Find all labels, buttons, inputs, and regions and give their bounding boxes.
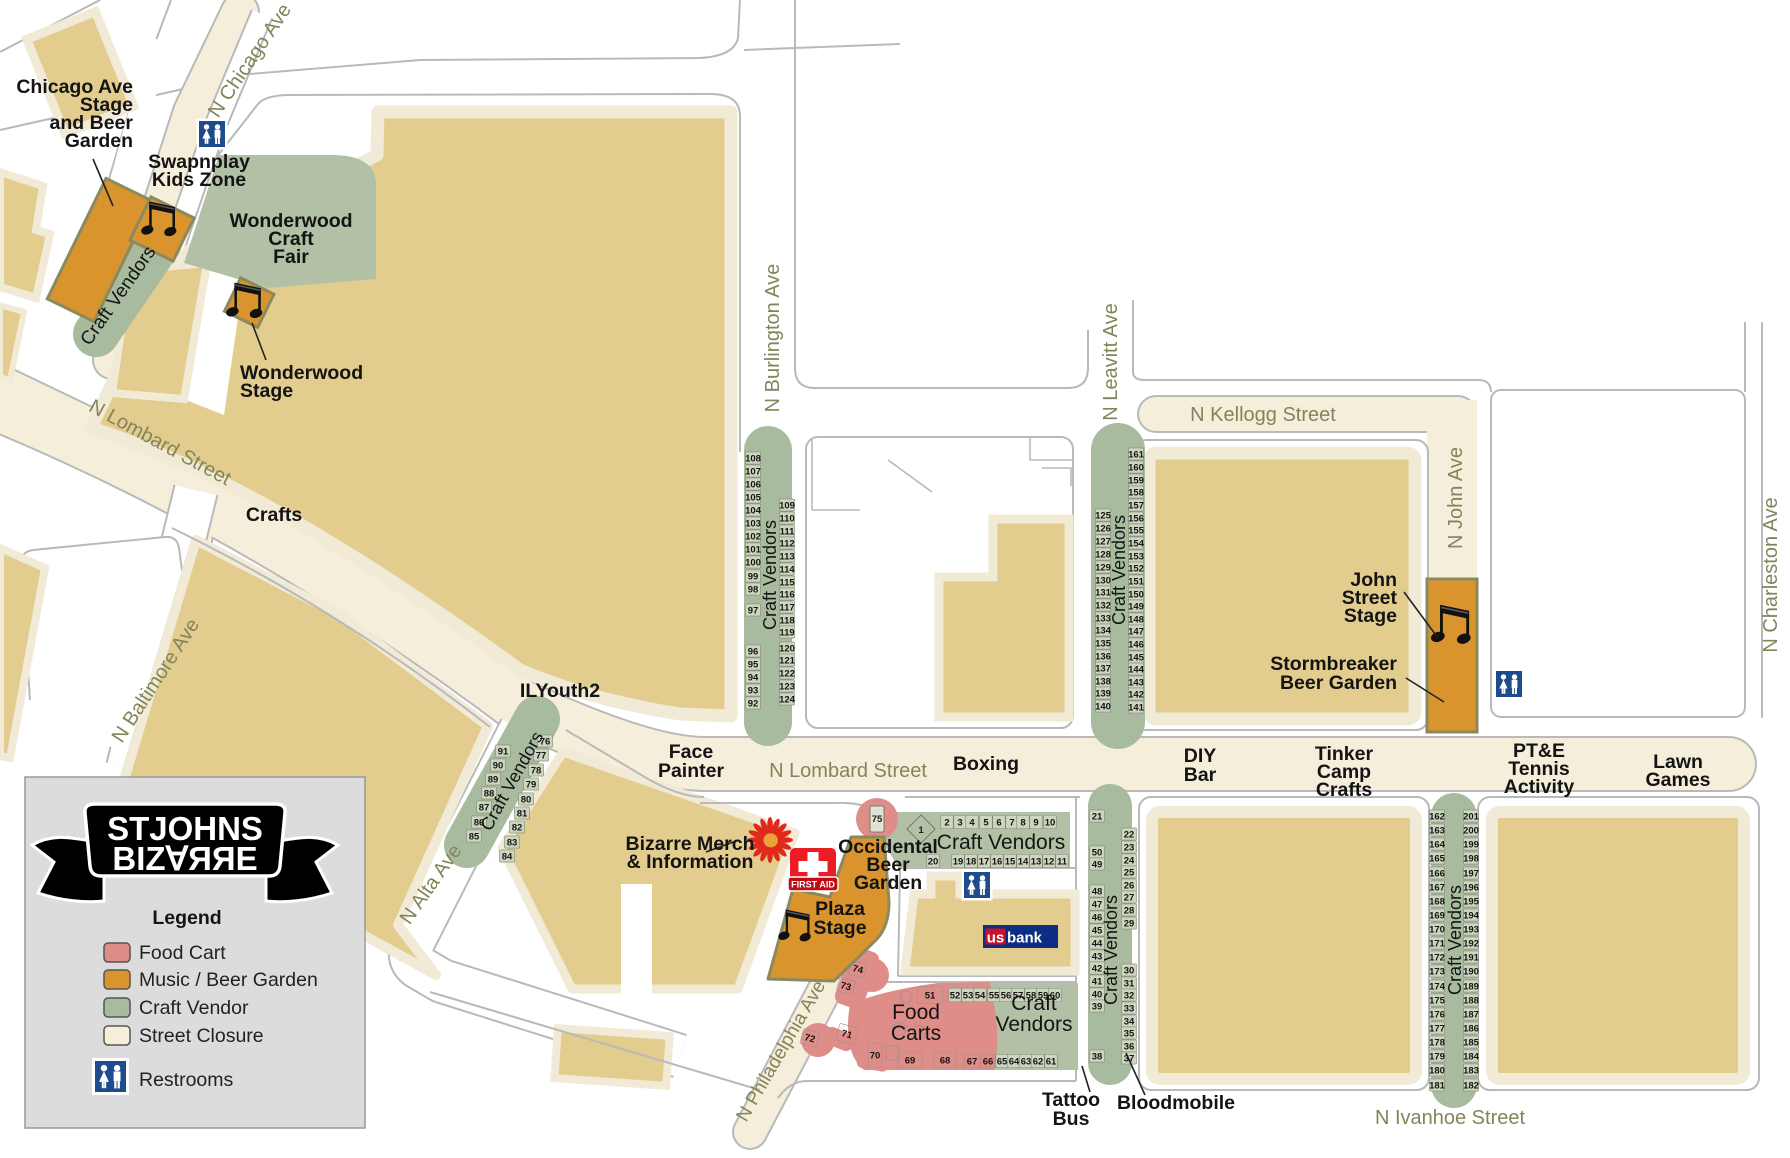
svg-text:183: 183 xyxy=(1463,1065,1479,1076)
svg-text:179: 179 xyxy=(1429,1051,1445,1062)
svg-text:192: 192 xyxy=(1463,938,1479,949)
svg-text:117: 117 xyxy=(779,602,794,613)
svg-text:120: 120 xyxy=(779,643,795,654)
svg-text:Music / Beer Garden: Music / Beer Garden xyxy=(139,969,318,991)
svg-text:191: 191 xyxy=(1463,952,1480,963)
svg-text:Painter: Painter xyxy=(658,760,725,782)
svg-text:197: 197 xyxy=(1463,868,1479,879)
svg-text:7: 7 xyxy=(1009,817,1014,828)
svg-text:20: 20 xyxy=(928,856,939,867)
svg-text:19: 19 xyxy=(953,856,964,867)
svg-text:Food: Food xyxy=(892,1001,940,1024)
svg-text:Fair: Fair xyxy=(273,246,309,268)
svg-text:33: 33 xyxy=(1124,1003,1135,1014)
svg-text:97: 97 xyxy=(748,605,759,616)
svg-text:66: 66 xyxy=(983,1056,994,1067)
svg-text:Legend: Legend xyxy=(152,907,221,929)
svg-text:6: 6 xyxy=(996,817,1001,828)
svg-text:172: 172 xyxy=(1429,952,1445,963)
svg-text:173: 173 xyxy=(1429,966,1445,977)
svg-text:115: 115 xyxy=(779,577,795,588)
svg-text:FIRST AID: FIRST AID xyxy=(791,880,835,890)
svg-text:17: 17 xyxy=(979,856,990,867)
svg-text:198: 198 xyxy=(1463,853,1479,864)
svg-text:138: 138 xyxy=(1095,676,1111,687)
svg-text:38: 38 xyxy=(1092,1051,1103,1062)
svg-text:52: 52 xyxy=(950,990,961,1001)
svg-text:171: 171 xyxy=(1429,938,1446,949)
svg-text:105: 105 xyxy=(745,492,762,503)
svg-text:167: 167 xyxy=(1429,882,1445,893)
svg-text:55: 55 xyxy=(989,990,1000,1001)
svg-text:Craft Vendors: Craft Vendors xyxy=(760,520,780,630)
svg-text:80: 80 xyxy=(521,794,532,805)
svg-text:155: 155 xyxy=(1128,525,1145,536)
svg-text:146: 146 xyxy=(1128,639,1144,650)
svg-text:49: 49 xyxy=(1092,859,1103,870)
svg-text:159: 159 xyxy=(1128,475,1144,486)
svg-text:199: 199 xyxy=(1463,839,1479,850)
svg-text:140: 140 xyxy=(1095,701,1111,712)
svg-text:Garden: Garden xyxy=(65,130,133,152)
svg-text:122: 122 xyxy=(779,668,795,679)
svg-text:N Ivanhoe Street: N Ivanhoe Street xyxy=(1375,1107,1526,1129)
svg-text:N Charleston Ave: N Charleston Ave xyxy=(1760,497,1782,652)
svg-text:170: 170 xyxy=(1429,924,1445,935)
svg-text:84: 84 xyxy=(502,851,513,862)
svg-text:Kids Zone: Kids Zone xyxy=(152,169,246,191)
svg-text:99: 99 xyxy=(748,571,759,582)
svg-text:61: 61 xyxy=(1046,1056,1057,1067)
svg-text:68: 68 xyxy=(940,1055,951,1066)
svg-text:ILYouth2: ILYouth2 xyxy=(520,680,600,702)
svg-text:89: 89 xyxy=(488,774,499,785)
svg-text:142: 142 xyxy=(1128,689,1144,700)
svg-text:147: 147 xyxy=(1128,626,1144,637)
svg-text:56: 56 xyxy=(1001,990,1012,1001)
svg-text:21: 21 xyxy=(1092,811,1103,822)
svg-text:201: 201 xyxy=(1463,811,1480,822)
svg-text:162: 162 xyxy=(1429,811,1445,822)
svg-text:137: 137 xyxy=(1095,663,1111,674)
svg-text:174: 174 xyxy=(1429,981,1446,992)
svg-text:118: 118 xyxy=(779,615,794,626)
svg-text:150: 150 xyxy=(1128,589,1144,600)
svg-text:149: 149 xyxy=(1128,601,1144,612)
svg-text:102: 102 xyxy=(745,531,761,542)
svg-text:75: 75 xyxy=(872,814,883,825)
svg-text:16: 16 xyxy=(992,856,1003,867)
svg-text:139: 139 xyxy=(1095,688,1111,699)
svg-text:Stage: Stage xyxy=(1344,605,1397,627)
svg-text:165: 165 xyxy=(1429,853,1446,864)
svg-text:148: 148 xyxy=(1128,614,1144,625)
svg-text:Craft Vendor: Craft Vendor xyxy=(139,997,249,1019)
svg-text:10: 10 xyxy=(1045,817,1056,828)
svg-text:90: 90 xyxy=(493,760,504,771)
svg-text:169: 169 xyxy=(1429,910,1445,921)
svg-text:Craft: Craft xyxy=(1011,992,1057,1015)
svg-text:69: 69 xyxy=(905,1055,916,1066)
svg-text:65: 65 xyxy=(997,1056,1008,1067)
svg-text:62: 62 xyxy=(1033,1056,1044,1067)
svg-text:168: 168 xyxy=(1429,896,1445,907)
svg-text:81: 81 xyxy=(517,808,528,819)
svg-text:151: 151 xyxy=(1128,576,1145,587)
svg-text:N Burlington Ave: N Burlington Ave xyxy=(762,264,784,413)
svg-text:54: 54 xyxy=(975,990,986,1001)
svg-text:135: 135 xyxy=(1095,638,1112,649)
svg-text:53: 53 xyxy=(963,990,974,1001)
svg-text:34: 34 xyxy=(1124,1016,1135,1027)
svg-text:196: 196 xyxy=(1463,882,1479,893)
svg-text:Boxing: Boxing xyxy=(953,753,1019,775)
svg-text:106: 106 xyxy=(745,479,761,490)
svg-text:124: 124 xyxy=(779,694,796,705)
svg-text:Craft Vendors: Craft Vendors xyxy=(1445,885,1465,995)
svg-text:50: 50 xyxy=(1092,847,1103,858)
svg-text:67: 67 xyxy=(967,1056,978,1067)
svg-text:144: 144 xyxy=(1128,664,1145,675)
svg-text:175: 175 xyxy=(1429,995,1446,1006)
svg-text:195: 195 xyxy=(1463,896,1480,907)
svg-text:136: 136 xyxy=(1095,651,1111,662)
svg-text:182: 182 xyxy=(1463,1080,1479,1091)
svg-text:200: 200 xyxy=(1463,825,1479,836)
svg-text:113: 113 xyxy=(779,551,794,562)
svg-text:194: 194 xyxy=(1463,910,1480,921)
svg-text:bank: bank xyxy=(1007,930,1043,947)
svg-text:Games: Games xyxy=(1645,769,1710,791)
svg-text:22: 22 xyxy=(1124,829,1135,840)
svg-text:N Leavitt Ave: N Leavitt Ave xyxy=(1100,303,1122,420)
svg-text:Crafts: Crafts xyxy=(1316,779,1373,801)
svg-text:100: 100 xyxy=(745,557,761,568)
svg-text:157: 157 xyxy=(1128,500,1144,511)
svg-text:96: 96 xyxy=(748,646,759,657)
svg-text:26: 26 xyxy=(1124,880,1135,891)
svg-text:N Kellogg Street: N Kellogg Street xyxy=(1190,404,1336,426)
svg-text:176: 176 xyxy=(1429,1009,1445,1020)
svg-text:23: 23 xyxy=(1124,842,1135,853)
svg-text:28: 28 xyxy=(1124,905,1135,916)
svg-text:25: 25 xyxy=(1124,867,1135,878)
svg-text:187: 187 xyxy=(1463,1009,1479,1020)
svg-text:Craft Vendors: Craft Vendors xyxy=(1101,895,1121,1005)
svg-text:83: 83 xyxy=(507,837,518,848)
svg-text:13: 13 xyxy=(1031,856,1042,867)
svg-text:134: 134 xyxy=(1095,625,1112,636)
svg-text:154: 154 xyxy=(1128,538,1145,549)
svg-text:166: 166 xyxy=(1429,868,1445,879)
svg-text:193: 193 xyxy=(1463,924,1479,935)
svg-text:Crafts: Crafts xyxy=(246,504,303,526)
svg-text:103: 103 xyxy=(745,518,761,529)
svg-text:8: 8 xyxy=(1020,817,1025,828)
svg-text:Craft Vendors: Craft Vendors xyxy=(1109,515,1129,625)
svg-text:107: 107 xyxy=(745,466,761,477)
svg-text:Craft Vendors: Craft Vendors xyxy=(937,831,1065,854)
svg-text:11: 11 xyxy=(1057,856,1068,867)
svg-text:us: us xyxy=(987,930,1005,947)
svg-text:109: 109 xyxy=(779,500,795,511)
svg-text:185: 185 xyxy=(1463,1037,1480,1048)
svg-text:15: 15 xyxy=(1005,856,1016,867)
svg-text:64: 64 xyxy=(1009,1056,1020,1067)
svg-text:108: 108 xyxy=(745,453,761,464)
svg-text:92: 92 xyxy=(748,698,759,709)
svg-text:1: 1 xyxy=(918,825,924,836)
svg-text:110: 110 xyxy=(779,513,794,524)
svg-text:N John Ave: N John Ave xyxy=(1445,447,1467,549)
svg-text:143: 143 xyxy=(1128,677,1144,688)
svg-text:190: 190 xyxy=(1463,966,1479,977)
svg-text:18: 18 xyxy=(966,856,977,867)
svg-text:Bloodmobile: Bloodmobile xyxy=(1117,1092,1235,1114)
svg-text:Bus: Bus xyxy=(1053,1108,1090,1130)
svg-text:123: 123 xyxy=(779,681,795,692)
svg-text:119: 119 xyxy=(779,627,794,638)
svg-text:Carts: Carts xyxy=(891,1022,941,1045)
svg-text:94: 94 xyxy=(748,672,759,683)
svg-text:Stage: Stage xyxy=(240,380,293,402)
svg-text:186: 186 xyxy=(1463,1023,1479,1034)
svg-text:35: 35 xyxy=(1124,1028,1135,1039)
svg-text:145: 145 xyxy=(1128,652,1145,663)
svg-text:36: 36 xyxy=(1124,1041,1135,1052)
svg-text:3: 3 xyxy=(957,817,962,828)
svg-text:104: 104 xyxy=(745,505,762,516)
svg-text:91: 91 xyxy=(498,746,509,757)
svg-text:5: 5 xyxy=(983,817,989,828)
svg-text:78: 78 xyxy=(531,765,542,776)
svg-text:98: 98 xyxy=(748,584,759,595)
svg-text:153: 153 xyxy=(1128,551,1144,562)
svg-text:14: 14 xyxy=(1018,856,1029,867)
svg-text:Garden: Garden xyxy=(854,872,922,894)
svg-text:51: 51 xyxy=(925,990,936,1001)
svg-text:31: 31 xyxy=(1124,978,1135,989)
svg-text:160: 160 xyxy=(1128,462,1144,473)
svg-text:180: 180 xyxy=(1429,1065,1445,1076)
svg-text:177: 177 xyxy=(1429,1023,1445,1034)
svg-text:N Lombard Street: N Lombard Street xyxy=(769,760,927,782)
svg-text:& Information: & Information xyxy=(627,851,754,873)
svg-text:156: 156 xyxy=(1128,513,1144,524)
svg-text:158: 158 xyxy=(1128,487,1144,498)
svg-text:32: 32 xyxy=(1124,990,1135,1001)
svg-text:116: 116 xyxy=(779,589,794,600)
svg-text:Stage: Stage xyxy=(813,917,866,939)
svg-text:184: 184 xyxy=(1463,1051,1480,1062)
svg-text:112: 112 xyxy=(779,538,794,549)
svg-text:2: 2 xyxy=(944,817,949,828)
svg-text:70: 70 xyxy=(870,1050,881,1061)
svg-text:163: 163 xyxy=(1429,825,1445,836)
svg-text:Beer Garden: Beer Garden xyxy=(1280,672,1397,694)
svg-text:Vendors: Vendors xyxy=(995,1013,1072,1036)
svg-text:114: 114 xyxy=(779,564,795,575)
svg-text:161: 161 xyxy=(1128,449,1145,460)
svg-text:4: 4 xyxy=(969,817,975,828)
svg-text:27: 27 xyxy=(1124,892,1135,903)
svg-text:141: 141 xyxy=(1128,702,1145,713)
svg-text:12: 12 xyxy=(1044,856,1055,867)
svg-text:Food Cart: Food Cart xyxy=(139,942,226,964)
svg-text:30: 30 xyxy=(1124,965,1135,976)
svg-text:29: 29 xyxy=(1124,918,1135,929)
svg-text:9: 9 xyxy=(1033,817,1038,828)
svg-text:63: 63 xyxy=(1021,1056,1032,1067)
svg-text:Restrooms: Restrooms xyxy=(139,1069,234,1091)
svg-text:181: 181 xyxy=(1429,1080,1446,1091)
svg-text:Street Closure: Street Closure xyxy=(139,1025,264,1047)
svg-text:Activity: Activity xyxy=(1504,776,1575,798)
svg-text:BIZ∀ЯЯE: BIZ∀ЯЯE xyxy=(112,840,257,877)
svg-text:121: 121 xyxy=(779,655,796,666)
svg-text:85: 85 xyxy=(469,831,480,842)
svg-text:Bar: Bar xyxy=(1184,764,1217,786)
svg-text:189: 189 xyxy=(1463,981,1479,992)
svg-text:152: 152 xyxy=(1128,563,1144,574)
svg-text:188: 188 xyxy=(1463,995,1479,1006)
svg-text:79: 79 xyxy=(526,779,537,790)
svg-text:111: 111 xyxy=(780,526,796,537)
svg-text:24: 24 xyxy=(1124,855,1135,866)
svg-text:178: 178 xyxy=(1429,1037,1445,1048)
svg-text:95: 95 xyxy=(748,659,759,670)
svg-text:82: 82 xyxy=(512,822,523,833)
svg-text:164: 164 xyxy=(1429,839,1446,850)
svg-text:93: 93 xyxy=(748,685,759,696)
